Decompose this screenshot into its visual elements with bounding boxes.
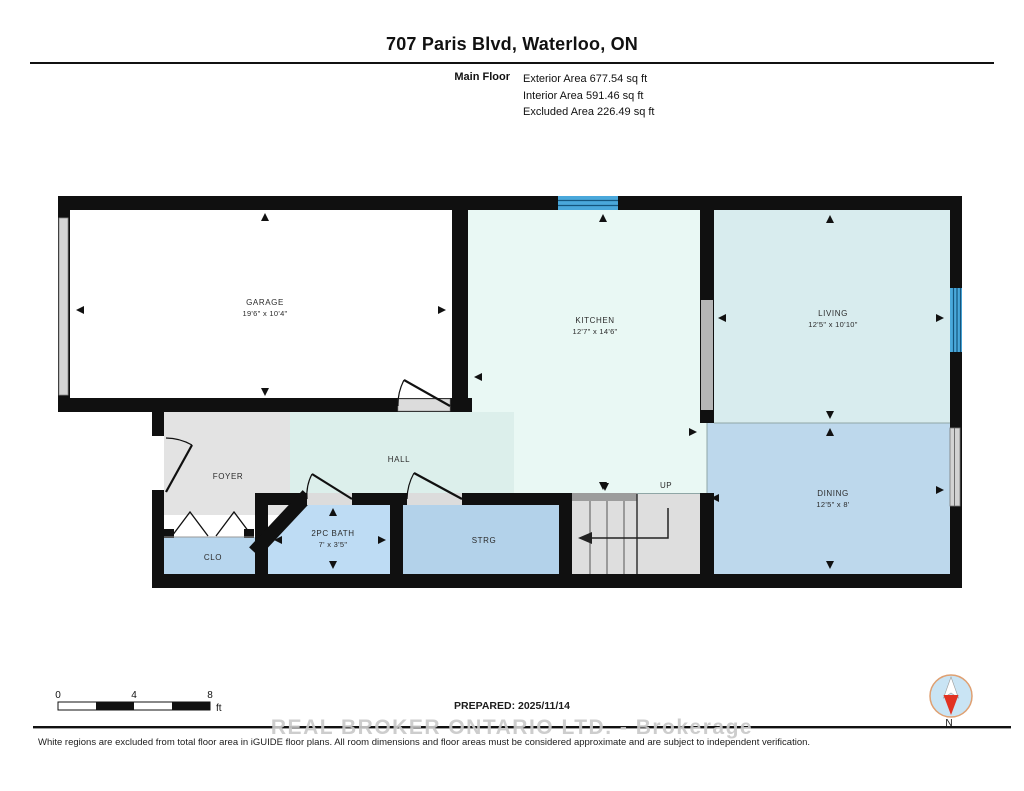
disclaimer-text: White regions are excluded from total fl… (38, 737, 810, 748)
area-stats: Exterior Area 677.54 sq ft Interior Area… (523, 71, 654, 121)
stat-exterior-area: Exterior Area 677.54 sq ft (523, 71, 654, 88)
closet-bifold-doors (172, 512, 252, 536)
entry-door-opening (152, 436, 164, 490)
scale-unit: ft (216, 703, 222, 714)
dining-dims: 12'5" x 8' (816, 500, 849, 509)
living-label: LIVING (818, 309, 848, 318)
kitchen-room-strip (700, 423, 707, 493)
scale-bar: 0 4 8 ft (55, 690, 222, 714)
scale-bar-seg2 (96, 702, 134, 710)
garage-label: GARAGE (246, 298, 284, 307)
living-dims: 12'5" x 10'10" (808, 320, 858, 329)
floor-label: Main Floor (330, 71, 510, 83)
hall-label: HALL (388, 455, 410, 464)
room-fills (70, 210, 950, 574)
wall-strg-top (462, 493, 572, 505)
stat-excluded-area: Excluded Area 226.49 sq ft (523, 104, 654, 121)
scale-tick-4: 4 (131, 690, 137, 701)
stairs-top-band (572, 493, 637, 501)
floor-plan: GARAGE 19'6" x 10'4" KITCHEN 12'7" x 14'… (0, 180, 1024, 791)
garage-door (59, 218, 68, 395)
living-window (950, 288, 962, 352)
storage-label: STRG (472, 536, 497, 545)
closet-label: CLO (204, 553, 222, 562)
bath-dims: 7' x 3'5" (319, 540, 348, 549)
kitchen-label: KITCHEN (575, 316, 614, 325)
header-divider (30, 62, 994, 64)
stat-interior-area: Interior Area 591.46 sq ft (523, 88, 654, 105)
bath-label: 2PC BATH (311, 529, 354, 538)
kitchen-dims: 12'7" x 14'6" (572, 327, 617, 336)
garage-dims: 19'6" x 10'4" (242, 309, 287, 318)
foyer-label: FOYER (213, 472, 244, 481)
scale-tick-0: 0 (55, 690, 61, 701)
dining-room (707, 423, 950, 574)
scale-tick-8: 8 (207, 690, 213, 701)
wall-bath-strg (390, 493, 403, 574)
scale-bar-seg4 (172, 702, 210, 710)
wall-top (58, 196, 962, 210)
brokerage-watermark: REAL BROKER ONTARIO LTD. - Brokerage (271, 716, 753, 739)
page-title: 707 Paris Blvd, Waterloo, ON (0, 34, 1024, 55)
stairs-up-label: UP (660, 481, 672, 490)
kitchen-window (558, 196, 618, 210)
dining-label: DINING (817, 489, 849, 498)
wall-garage-kitchen (452, 196, 468, 412)
wall-right (950, 196, 962, 588)
wall-stairs-dining (700, 493, 714, 574)
wall-strg-stairs (559, 493, 572, 574)
living-left-opening (701, 300, 713, 410)
compass-icon (930, 675, 972, 717)
wall-bottom (152, 574, 962, 588)
dining-window (950, 428, 960, 506)
prepared-date: PREPARED: 2025/11/14 (454, 700, 570, 712)
